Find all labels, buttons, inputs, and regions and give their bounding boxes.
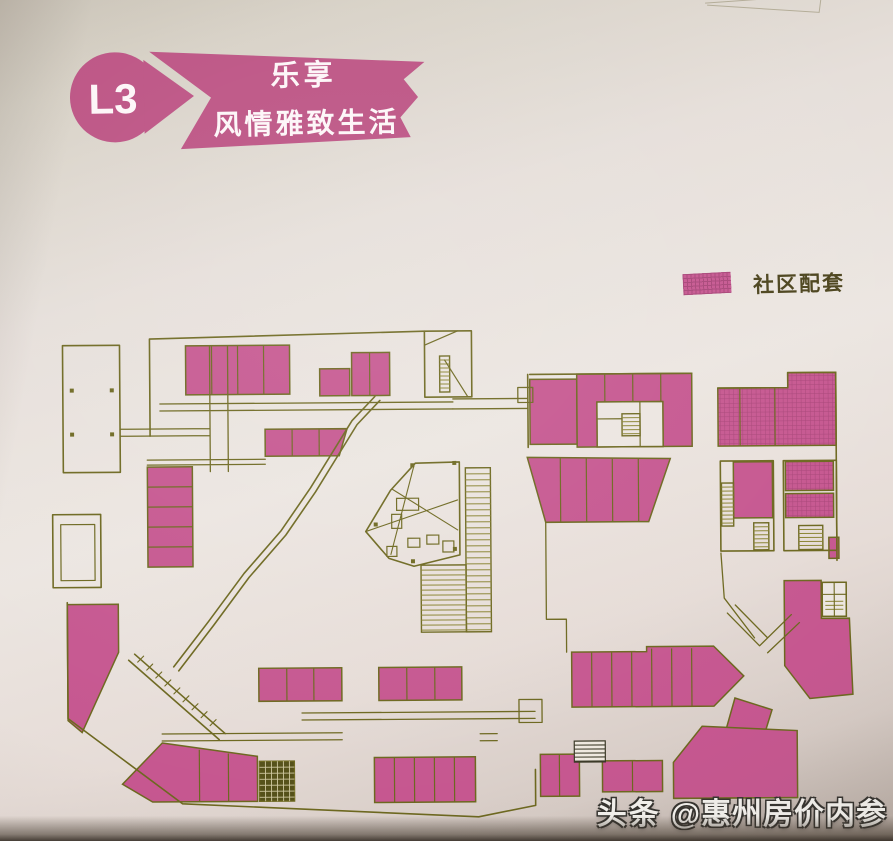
legend-label: 社区配套	[753, 267, 846, 299]
legend: 社区配套	[683, 268, 845, 298]
banner-tagline-top: 乐享	[270, 57, 337, 92]
watermark-handle: @惠州房价内参	[671, 798, 887, 831]
page-photo: L3 乐享 风情雅致生活 社区配套 头条@惠州房价内参	[0, 0, 893, 841]
legend-swatch	[682, 271, 731, 294]
banner-tagline-bottom: 风情雅致生活	[213, 106, 400, 140]
watermark-brand: 头条	[597, 798, 661, 831]
level-banner: L3 乐享 风情雅致生活	[55, 35, 441, 160]
watermark: 头条@惠州房价内参	[597, 789, 887, 833]
banner-level-label: L3	[88, 75, 138, 123]
